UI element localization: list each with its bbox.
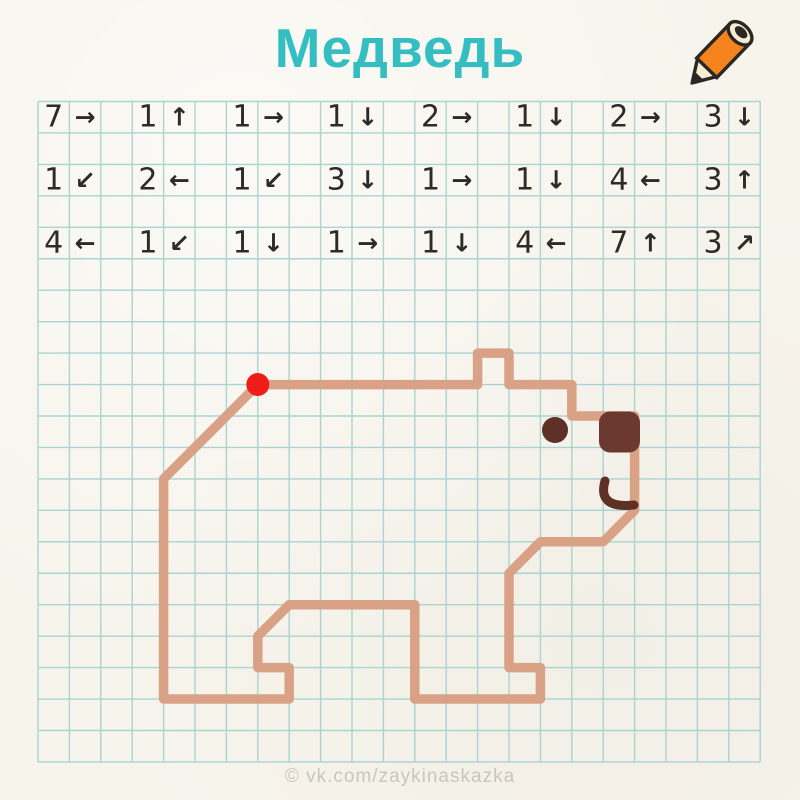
worksheet-canvas — [0, 0, 800, 800]
bear-outline — [164, 353, 635, 699]
pencil-icon — [668, 4, 772, 100]
watermark: © vk.com/zaykinaskazka — [0, 766, 800, 788]
bear-eye — [542, 417, 568, 443]
bear-mouth — [604, 481, 634, 506]
worksheet-page: Медведь 7→1↑1→1↓2→1↓2→3↓1↙2←1↙3↓1→1↓4←3↑… — [0, 0, 800, 800]
start-dot — [246, 373, 269, 396]
bear-nose — [599, 412, 640, 453]
